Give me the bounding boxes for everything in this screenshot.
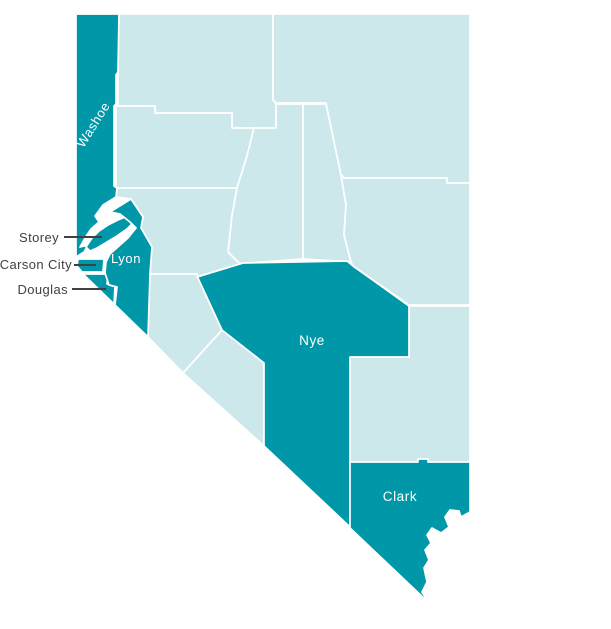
counties-layer: HumboldtElkoPershingLanderEurekaWhite Pi… [76, 14, 470, 603]
county-clark[interactable]: Clark [350, 459, 470, 603]
external-label-douglas: Douglas [18, 282, 69, 297]
external-label-carson-city: Carson City [0, 257, 72, 272]
nevada-county-map: HumboldtElkoPershingLanderEurekaWhite Pi… [0, 0, 611, 629]
nevada-map-svg: HumboldtElkoPershingLanderEurekaWhite Pi… [0, 0, 611, 629]
county-washoe[interactable]: Washoe [76, 14, 119, 257]
external-label-storey: Storey [19, 230, 59, 245]
